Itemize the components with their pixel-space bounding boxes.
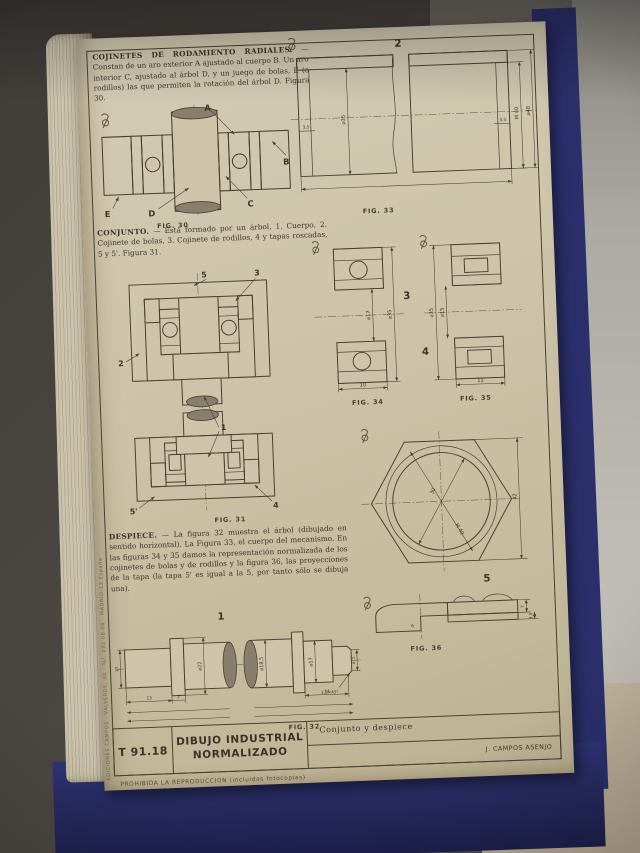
fig32-part-number: 1 — [217, 612, 224, 623]
book-page-sheet: EDICIONES CAMPOS · VALVERDE, 30 · Tel. 2… — [76, 21, 575, 790]
surface-finish-icon — [420, 235, 427, 248]
fig36-dim-across: 42 — [512, 493, 518, 500]
fig34-dim-width: 10 — [360, 382, 367, 388]
figure-33: 2 3,5 ⌀35 3,5 M 40 — [282, 28, 545, 219]
fig33-dim-t1: 3,5 — [302, 124, 309, 130]
fig36-dim-h35: 3,5 — [528, 612, 534, 619]
book-title: DIBUJO INDUSTRIAL NORMALIZADO — [172, 722, 309, 773]
surface-finish-icon — [288, 38, 295, 52]
fig33-dim-t2: 3,5 — [499, 117, 506, 123]
fig30-label-a: A — [204, 102, 211, 112]
fig30-drawing: A B C D E — [90, 99, 296, 223]
fig30-label-c: C — [247, 198, 253, 208]
section-despiece: DESPIECE. — La figura 32 muestra el árbo… — [109, 523, 349, 594]
fig36-dim-h7: 7 — [520, 605, 526, 608]
fig30-label-d: D — [148, 208, 155, 218]
fig34-part-number: 3 — [403, 291, 411, 302]
fig31-label-1: 1 — [221, 423, 227, 432]
fig36-dim-thread: M 40 — [453, 523, 465, 537]
section-despiece-title: DESPIECE. — [109, 531, 158, 542]
fig31-label-3: 3 — [254, 268, 260, 277]
surface-finish-icon — [312, 241, 319, 254]
fig32-dim-17seat: ⌀17 — [308, 657, 314, 666]
figure-30: A B C D E — [90, 99, 296, 227]
fig34-dim-bore: ⌀17 — [366, 310, 372, 320]
fig35-dim-bore: ⌀15 — [440, 307, 446, 317]
fig32-drawing: 1 17 ⌀22 ⌀18,5 — [110, 605, 366, 727]
section-cojinetes: COJINETES DE RODAMIENTO RADIALES. — Cons… — [92, 44, 310, 104]
fig33-dim-bore: ⌀35 — [341, 115, 347, 125]
photo-of-book-page: EDICIONES CAMPOS · VALVERDE, 30 · Tel. 2… — [0, 0, 640, 853]
fig33-dim-thread: M 40 — [514, 107, 520, 120]
fig33-part-number: 2 — [394, 38, 402, 50]
fig32-dim-17: 17 — [114, 666, 119, 672]
fig31-label-4: 4 — [273, 501, 279, 510]
figure-32: 1 17 ⌀22 ⌀18,5 — [110, 605, 367, 739]
fig31-label-5p: 5' — [130, 507, 138, 516]
surface-finish-icon — [364, 597, 371, 610]
fig32-dim-185: ⌀18,5 — [259, 657, 266, 671]
fig35-dim-width: 11 — [477, 378, 484, 384]
figure-35: ⌀35 ⌀15 11 4 FIG. 35 — [413, 230, 531, 404]
fig36-part-number: 5 — [483, 573, 491, 584]
sheet-code: T 91.18 — [113, 727, 174, 775]
fig36-drawing: 30 M 40 42 5 7 3,5 — [352, 410, 551, 643]
fig35-part-number: 4 — [422, 347, 430, 358]
fig32-dim-22: ⌀22 — [197, 661, 203, 670]
fig36-dim-h6: 6 — [411, 623, 414, 629]
fig33-drawing: 2 3,5 ⌀35 3,5 M 40 — [282, 28, 544, 207]
fig31-label-5: 5 — [201, 270, 207, 279]
fig33-dim-od: ⌀48 — [526, 106, 532, 116]
fig31-label-2: 2 — [118, 359, 124, 368]
fig35-drawing: ⌀35 ⌀15 11 4 — [413, 230, 531, 392]
surface-finish-icon — [361, 429, 368, 442]
fig34-drawing: ⌀17 ⌀35 10 3 — [306, 234, 424, 396]
fig34-dim-od: ⌀35 — [387, 309, 393, 319]
section-conjunto-title: CONJUNTO. — [97, 227, 149, 238]
fig32-dim-14: 14 — [324, 689, 330, 694]
figure-36: 30 M 40 42 5 7 3,5 — [352, 410, 551, 655]
fig32-dim-13: 13 — [146, 695, 152, 700]
figure-34: ⌀17 ⌀35 10 3 FIG. 34 — [306, 234, 424, 408]
fig30-label-e: E — [105, 209, 111, 219]
fig32-dim-15: ⌀15 — [351, 656, 356, 664]
surface-finish-icon — [102, 114, 109, 128]
fig35-dim-od: ⌀35 — [429, 308, 435, 318]
fig31-drawing: 5 3 2 1 5' 4 — [111, 266, 292, 516]
figure-31: 5 3 2 1 5' 4 FIG. 31 — [111, 266, 293, 528]
